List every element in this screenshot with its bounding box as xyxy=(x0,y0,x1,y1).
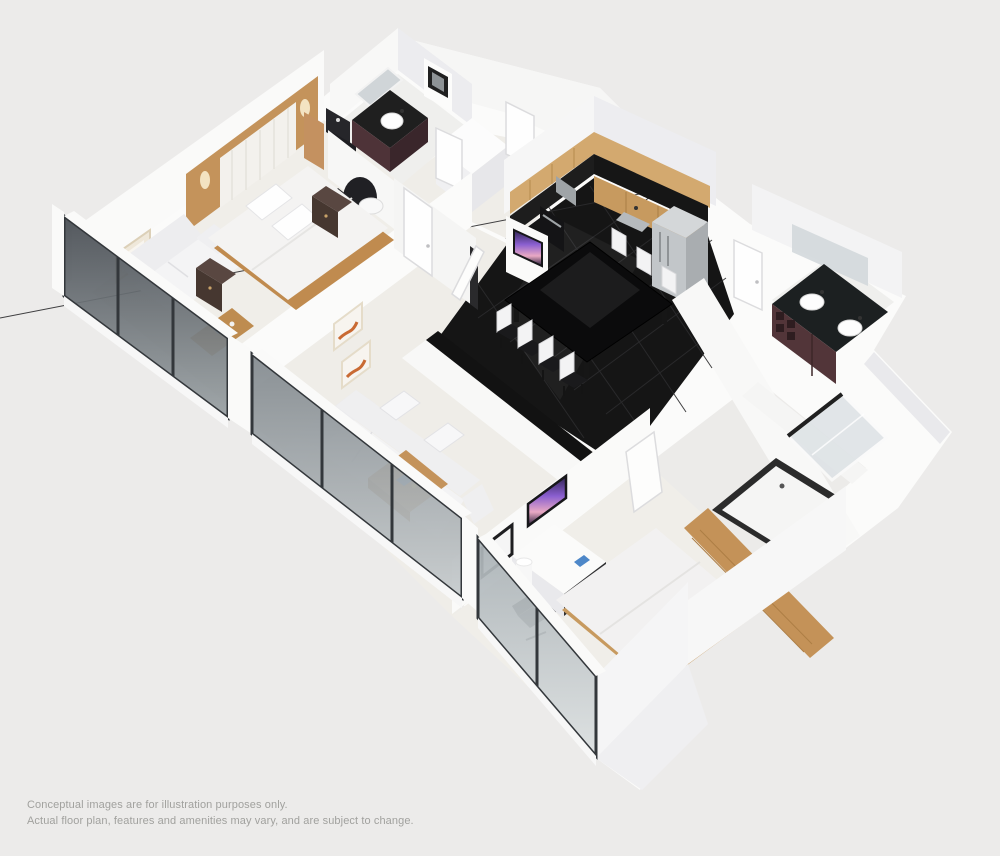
sconce-light xyxy=(200,171,210,189)
entry-door xyxy=(734,240,762,310)
disclaimer: Conceptual images are for illustration p… xyxy=(27,798,414,829)
wall-pier xyxy=(228,334,252,434)
sink-basin xyxy=(838,320,862,336)
door-knob xyxy=(755,280,759,284)
tub-faucet xyxy=(780,484,785,489)
wall-pier xyxy=(462,514,478,612)
faucet xyxy=(400,109,404,113)
disclaimer-line-1: Conceptual images are for illustration p… xyxy=(27,798,414,814)
sink-basin xyxy=(381,113,403,129)
faucet xyxy=(634,206,638,210)
floorplan-canvas xyxy=(0,0,1000,856)
sink-basin xyxy=(800,294,824,310)
faucet xyxy=(820,290,824,294)
faucet xyxy=(858,316,862,320)
corner-pier xyxy=(52,204,64,296)
floorplan-render: Conceptual images are for illustration p… xyxy=(0,0,1000,856)
door-knob xyxy=(426,244,430,248)
disclaimer-line-2: Actual floor plan, features and amenitie… xyxy=(27,814,414,830)
